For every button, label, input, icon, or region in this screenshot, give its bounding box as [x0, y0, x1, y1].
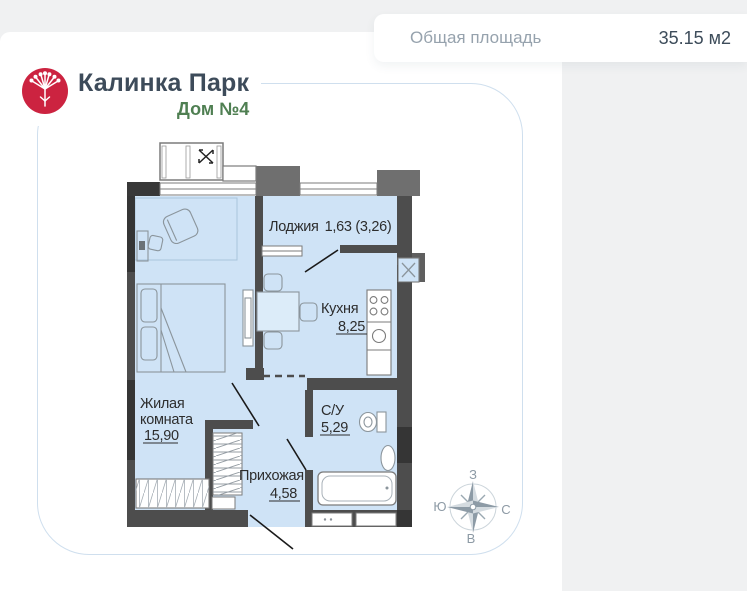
label-bathroom: С/У: [321, 403, 345, 419]
compass-label-west: З: [469, 467, 477, 482]
toilet: [360, 412, 387, 432]
kitchen-table: [257, 292, 299, 331]
label-kitchen: Кухня: [321, 301, 358, 317]
label-living-area: 15,90: [144, 428, 179, 444]
balcony: [160, 143, 256, 181]
label-hallway-area: 4,58: [270, 486, 297, 502]
washbasin: [381, 446, 395, 471]
floor-plan-svg: Лоджия1,63 (3,26) Кухня 8,25 Жилая комна…: [0, 0, 747, 591]
label-kitchen-area: 8,25: [338, 319, 365, 335]
label-loggia: Лоджия1,63 (3,26): [269, 219, 391, 235]
label-bathroom-area: 5,29: [321, 420, 348, 436]
compass-label-north: С: [501, 502, 510, 517]
label-living-1: Жилая: [140, 396, 184, 412]
compass-label-south: Ю: [433, 499, 446, 514]
compass-rose: З Ю С В: [433, 467, 510, 546]
tv-stand: [243, 290, 253, 346]
page-background: Общая площадь 35.15 м2 Калинка Парк Дом …: [0, 0, 747, 591]
kitchen-unit: [367, 290, 391, 375]
compass-label-east: В: [467, 531, 476, 546]
bathtub: [318, 472, 396, 505]
wardrobe: [136, 479, 209, 508]
drain-dot: [386, 487, 389, 490]
vent-shaft-icon: [398, 258, 419, 282]
label-living-2: комната: [140, 412, 194, 428]
label-hallway: Прихожая: [239, 468, 304, 484]
